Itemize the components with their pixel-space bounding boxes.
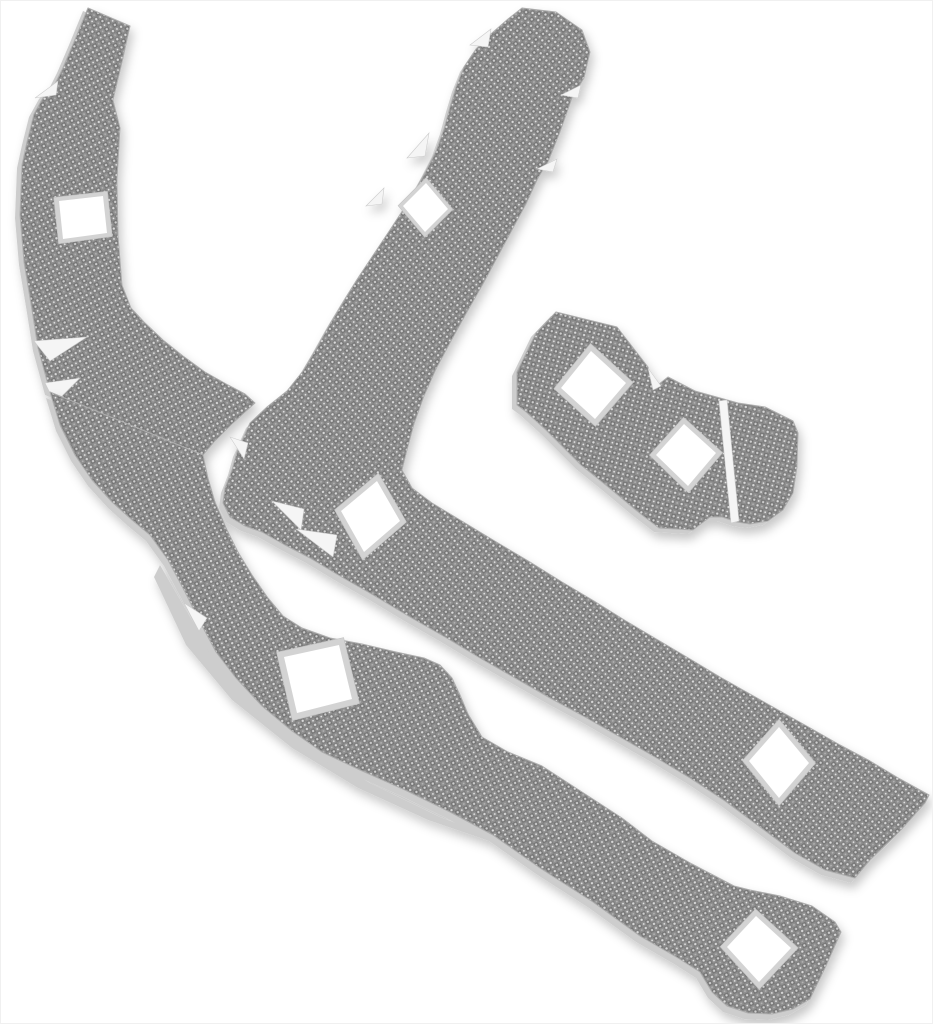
heat-shield-kit-svg xyxy=(0,0,933,1024)
relief-slit xyxy=(35,81,58,98)
mounting-hole xyxy=(59,196,107,239)
heat-shield-kit-photo xyxy=(0,0,933,1024)
woven-face xyxy=(517,312,798,530)
relief-slit xyxy=(470,29,491,47)
relief-slit xyxy=(366,188,384,206)
heat-shield-piece-small-bowtie xyxy=(512,312,798,534)
product-photo xyxy=(0,0,933,1024)
heat-shield-piece-left-upper-arm xyxy=(15,8,255,458)
relief-slit xyxy=(407,133,429,158)
